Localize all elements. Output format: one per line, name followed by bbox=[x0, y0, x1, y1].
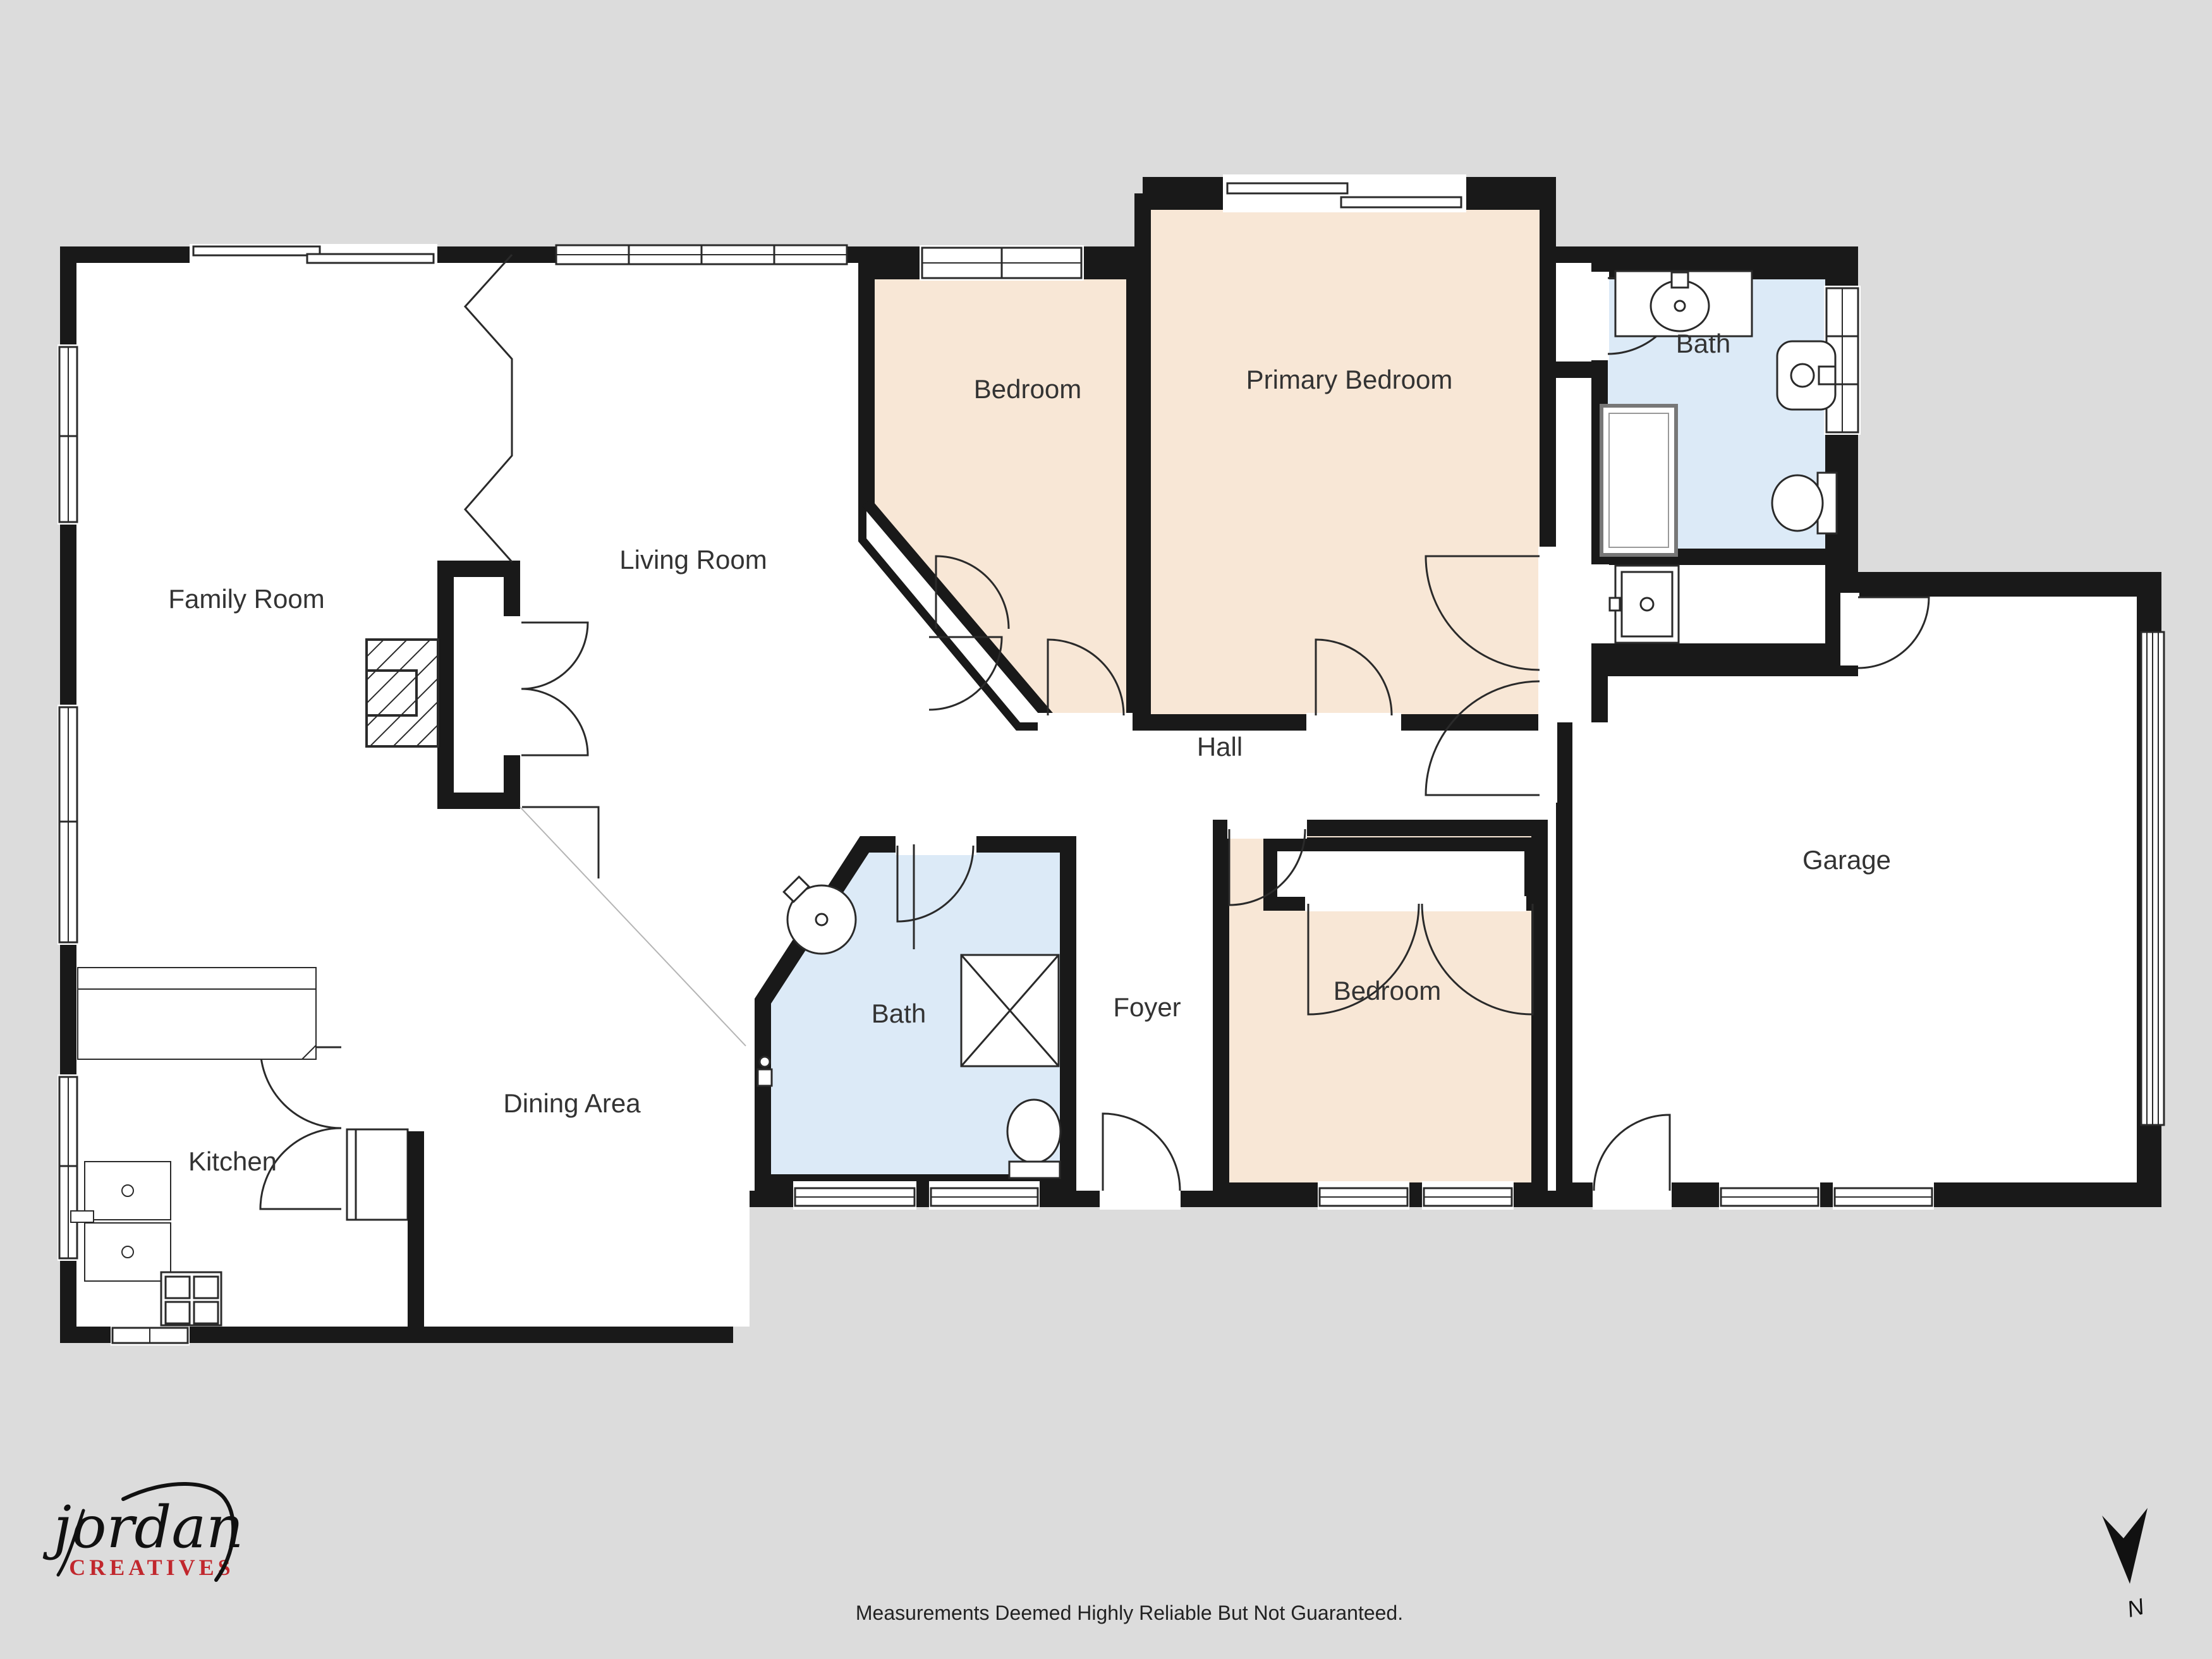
shower-icon-bath-top bbox=[1601, 406, 1676, 555]
window-kitchen bbox=[111, 1325, 190, 1346]
window-bedroom-bottom-2 bbox=[1422, 1181, 1514, 1210]
label-hall: Hall bbox=[1197, 732, 1243, 762]
toilet-icon-bath-middle bbox=[1007, 1100, 1060, 1178]
sliding-door-primary bbox=[1223, 174, 1466, 212]
logo: jordan CREATIVES bbox=[43, 1484, 244, 1580]
disclaimer-text: Measurements Deemed Highly Reliable But … bbox=[856, 1601, 1403, 1624]
toilet-icon-bath-top bbox=[1772, 473, 1837, 533]
label-bath-top: Bath bbox=[1676, 329, 1730, 358]
kitchen-wall-stub bbox=[408, 1131, 424, 1327]
garage-door bbox=[2141, 632, 2164, 1125]
vestibule-closet bbox=[437, 561, 523, 809]
window-left-1 bbox=[58, 344, 79, 525]
label-bath-middle: Bath bbox=[872, 999, 926, 1028]
window-bedroom-top bbox=[920, 245, 1084, 281]
fridge-icon bbox=[347, 1129, 408, 1220]
kitchen-counter bbox=[78, 968, 316, 1059]
window-bath-middle-2 bbox=[929, 1181, 1040, 1210]
label-dining-area: Dining Area bbox=[503, 1088, 641, 1118]
window-garage-2 bbox=[1833, 1181, 1934, 1210]
room-garage bbox=[1564, 588, 2145, 1191]
label-bedroom-top: Bedroom bbox=[974, 374, 1081, 404]
label-foyer: Foyer bbox=[1113, 992, 1181, 1022]
window-bath-middle-1 bbox=[793, 1181, 916, 1210]
logo-name-text: jordan bbox=[43, 1493, 244, 1561]
bidet-icon bbox=[1777, 341, 1835, 410]
sliding-door-family bbox=[190, 244, 437, 265]
floor-plan-page: Family Room Living Room Bedroom Primary … bbox=[0, 0, 2212, 1659]
floor-plan-drawing: Family Room Living Room Bedroom Primary … bbox=[0, 0, 2212, 1659]
label-bedroom-bottom: Bedroom bbox=[1334, 976, 1441, 1006]
sink-icon-hall-wing bbox=[1610, 566, 1679, 643]
window-garage-1 bbox=[1719, 1181, 1820, 1210]
label-garage: Garage bbox=[1802, 845, 1891, 875]
label-primary-bedroom: Primary Bedroom bbox=[1246, 365, 1453, 394]
window-living bbox=[556, 245, 847, 264]
room-primary-bedroom bbox=[1143, 202, 1548, 722]
faucet-icon-bath-middle bbox=[758, 1057, 772, 1086]
window-left-3 bbox=[58, 1074, 79, 1261]
north-label: N bbox=[2124, 1593, 2147, 1622]
sink-icon-bath-top bbox=[1615, 271, 1752, 336]
window-bedroom-bottom-1 bbox=[1318, 1181, 1409, 1210]
north-arrow-icon: N bbox=[2102, 1508, 2148, 1622]
label-living-room: Living Room bbox=[619, 545, 767, 574]
closet-bedroom-bottom bbox=[1270, 844, 1531, 911]
label-family-room: Family Room bbox=[168, 584, 324, 614]
label-kitchen: Kitchen bbox=[188, 1146, 277, 1176]
stove-icon bbox=[161, 1272, 221, 1325]
shower-icon-bath-middle bbox=[961, 955, 1059, 1066]
window-left-2 bbox=[58, 705, 79, 945]
fireplace-icon bbox=[367, 640, 438, 746]
logo-tagline-text: CREATIVES bbox=[69, 1555, 234, 1580]
